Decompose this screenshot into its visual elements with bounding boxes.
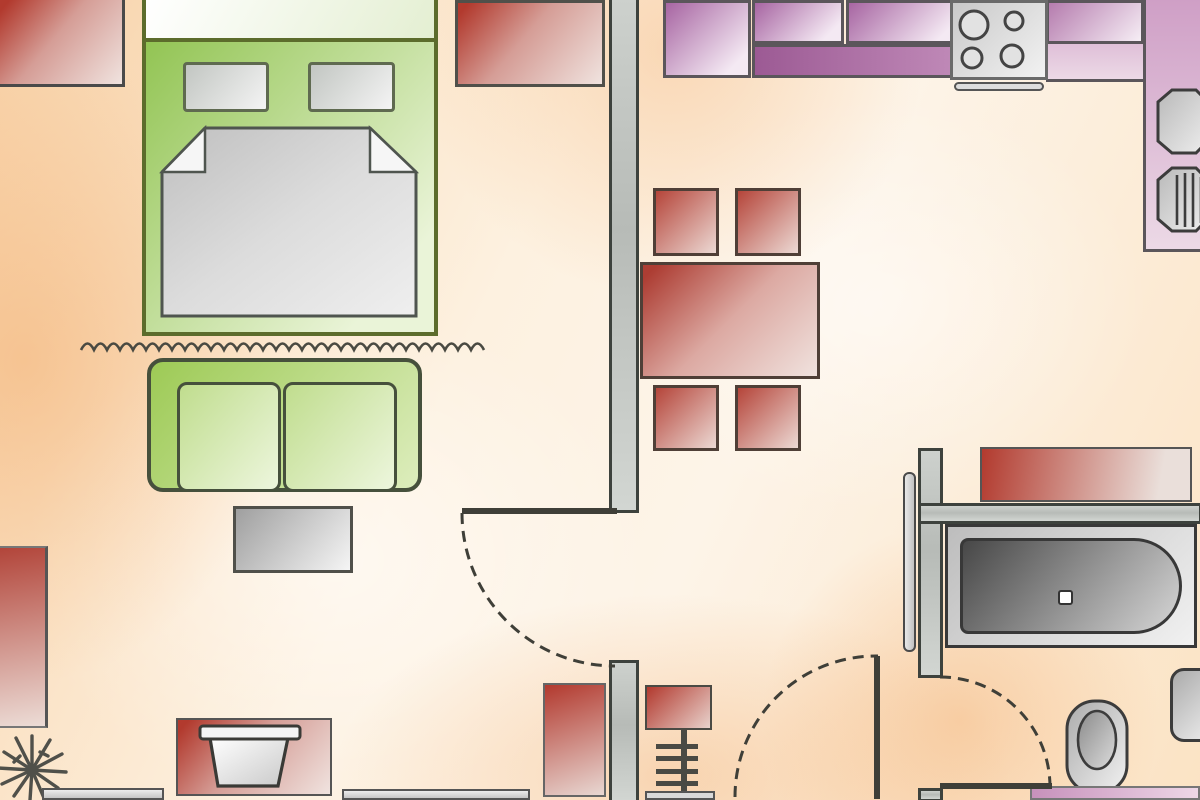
door-swings <box>0 0 1200 800</box>
floor-plan <box>0 0 1200 800</box>
